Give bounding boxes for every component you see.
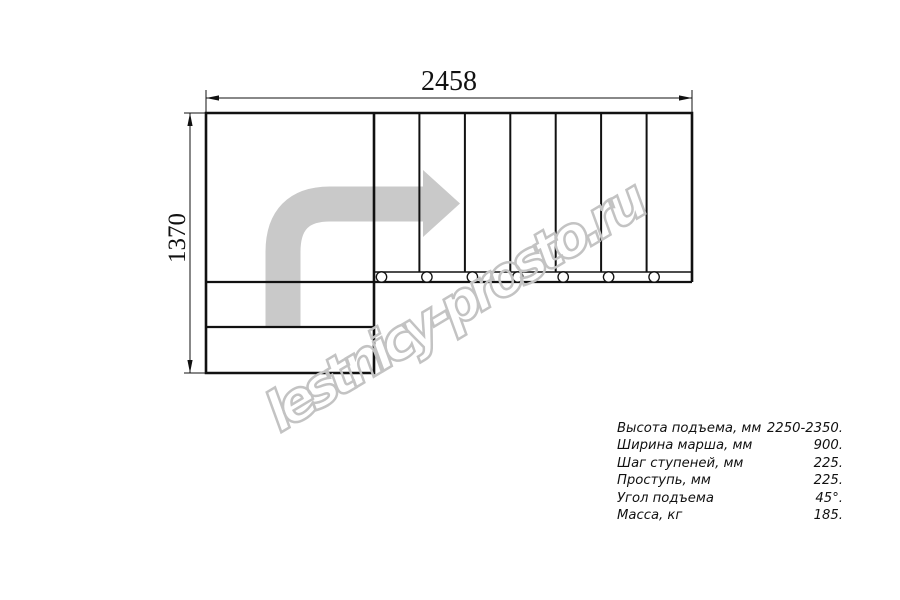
spec-label: Высота подъема, мм <box>617 420 761 437</box>
spec-label: Масса, кг <box>617 507 682 524</box>
spec-label: Проступь, мм <box>617 472 711 489</box>
spec-row-tread-depth: Проступь, мм 225. <box>617 472 843 489</box>
spec-row-step-pitch: Шаг ступеней, мм 225. <box>617 455 843 472</box>
spec-row-lift-height: Высота подъема, мм 2250-2350. <box>617 420 843 437</box>
dim-arrow-left-icon <box>206 95 219 100</box>
direction-arrow-head <box>423 170 460 237</box>
spec-label: Угол подъема <box>617 490 714 507</box>
dim-arrow-up-icon <box>187 113 192 126</box>
dimension-width: 2458 <box>206 66 692 113</box>
spec-value: 225. <box>814 472 843 489</box>
direction-arrow-shaft <box>283 204 423 327</box>
dim-arrow-down-icon <box>187 360 192 373</box>
spec-label: Ширина марша, мм <box>617 437 752 454</box>
spec-value: 225. <box>814 455 843 472</box>
dimension-height: 1370 <box>164 113 206 373</box>
spec-row-mass: Масса, кг 185. <box>617 507 843 524</box>
spec-row-flight-width: Ширина марша, мм 900. <box>617 437 843 454</box>
tread-post-circles <box>376 272 659 282</box>
height-dimension-label: 1370 <box>164 213 191 263</box>
tread-dividers <box>419 113 646 272</box>
spec-table: Высота подъема, мм 2250-2350. Ширина мар… <box>617 420 843 524</box>
stair-plan-page: 2458 1370 lestnicy-prosto.ru Высота подъ… <box>0 0 900 600</box>
width-dimension-label: 2458 <box>421 66 477 97</box>
spec-value: 185. <box>814 507 843 524</box>
dim-arrow-right-icon <box>679 95 692 100</box>
spec-value: 45°. <box>815 490 843 507</box>
spec-label: Шаг ступеней, мм <box>617 455 743 472</box>
spec-value: 900. <box>814 437 843 454</box>
spec-row-rise-angle: Угол подъема 45°. <box>617 490 843 507</box>
spec-value: 2250-2350. <box>767 420 843 437</box>
direction-arrow <box>283 170 460 327</box>
